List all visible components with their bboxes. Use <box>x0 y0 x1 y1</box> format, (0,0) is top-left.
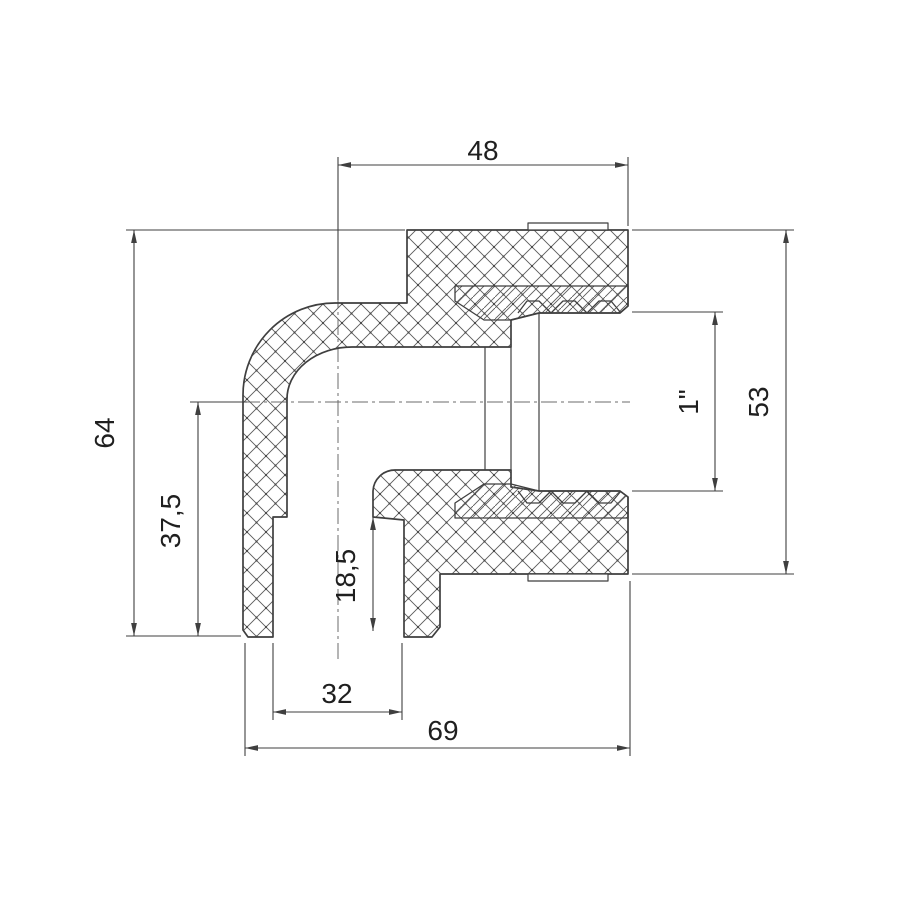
dimensions: 48 64 37,5 18,5 32 <box>89 135 794 756</box>
dimension-label-53: 53 <box>743 386 774 417</box>
dimension-label-18-5: 18,5 <box>330 549 361 604</box>
dimension-label-1-inch: 1" <box>673 389 704 415</box>
technical-drawing-elbow-fitting: 48 64 37,5 18,5 32 <box>0 0 900 900</box>
dimension-label-48: 48 <box>467 135 498 166</box>
dimension-socket-depth: 18,5 <box>330 517 373 631</box>
fitting-body <box>243 223 628 637</box>
dimension-label-37-5: 37,5 <box>155 494 186 549</box>
top-face-rib <box>528 223 608 230</box>
dimension-label-32: 32 <box>321 678 352 709</box>
dimension-thread-size: 1" <box>632 312 723 491</box>
dimension-label-64: 64 <box>89 417 120 448</box>
dimension-side-height: 53 <box>632 230 794 574</box>
dimension-label-69: 69 <box>427 715 458 746</box>
drawing-canvas: 48 64 37,5 18,5 32 <box>0 0 900 900</box>
bottom-face-rib <box>528 574 608 581</box>
dimension-center-height: 37,5 <box>155 402 247 636</box>
